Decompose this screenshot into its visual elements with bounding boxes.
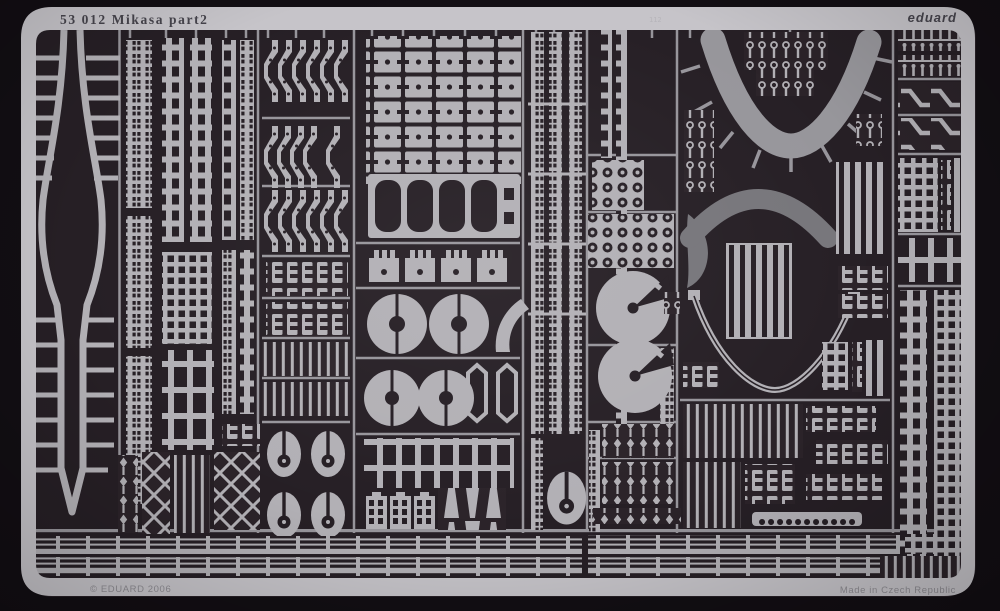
sheet-title: 53 012 Mikasa part2: [60, 12, 209, 27]
clip-row: [222, 424, 260, 446]
oval-vent: [547, 472, 586, 525]
fret-sheet-graphic: 53 012 Mikasa part2 eduard © EDUARD 2006…: [0, 0, 1000, 611]
part-number-label: 112: [649, 16, 662, 24]
window-grid: [364, 438, 514, 488]
ladder-strip: [569, 32, 582, 434]
ladder-strip: [549, 32, 562, 434]
brand-logo: eduard: [908, 10, 957, 25]
slat-block: [864, 340, 888, 396]
slat-block: [836, 162, 888, 254]
vent-fan: [311, 431, 345, 477]
ladder-strip: [222, 250, 236, 414]
ladder-strip: [531, 438, 543, 530]
barrel-cutout: [375, 180, 401, 232]
stanchion-row: [898, 55, 966, 76]
clip-row: [838, 266, 888, 290]
comb-strip: [262, 382, 350, 416]
zigzag-braces: [898, 118, 968, 150]
disc-hole: [385, 391, 399, 405]
eyelet-bits: [856, 114, 882, 146]
deckhouse-part: [414, 492, 435, 529]
clip-column: [852, 342, 862, 392]
hatch-square-grid: [366, 36, 521, 184]
rail-strip: [190, 38, 212, 242]
clip-column: [941, 160, 951, 230]
long-rail-strip: [900, 290, 927, 558]
comb-strip: [262, 342, 350, 376]
comb-panel: [683, 462, 741, 528]
vent-fan: [267, 492, 301, 538]
zigzag-braces: [898, 82, 968, 112]
lattice-panel: [142, 452, 170, 534]
clip-row: [806, 406, 876, 432]
ring-plate: [592, 160, 644, 210]
deckhouse-part: [366, 492, 387, 529]
copyright-text: © EDUARD 2006: [90, 584, 171, 595]
rail-strip: [601, 30, 612, 158]
part-slat-panel: [727, 244, 791, 338]
window-panel: [162, 350, 214, 450]
barrel-cutout: [439, 180, 465, 232]
window-panel: [898, 238, 966, 282]
clip-row: [838, 294, 888, 318]
bead-chain-panel: [602, 424, 674, 458]
clip-block: [745, 464, 795, 504]
vent-fan: [311, 492, 345, 538]
slot: [504, 212, 514, 224]
clip-row: [816, 440, 888, 464]
clip-bits: [683, 362, 719, 388]
wedge-strip: [438, 488, 506, 530]
disc-hole: [451, 316, 467, 332]
ladder-strip: [126, 216, 152, 348]
barrel-cutout: [471, 180, 497, 232]
slat-panel: [727, 244, 791, 338]
eyelet-bits: [664, 292, 680, 314]
grid-block: [905, 534, 965, 554]
slot: [504, 188, 514, 200]
bead-strip: [593, 508, 681, 524]
clip-row: [266, 302, 348, 336]
vent-fan: [267, 431, 301, 477]
clip-row: [266, 262, 348, 296]
bead-chain-panel: [602, 462, 674, 504]
eyelet-block: [744, 32, 828, 70]
eyelet-column: [684, 110, 714, 192]
grid-panel: [898, 158, 938, 232]
eyelet-block: [756, 70, 814, 96]
comb-panel: [683, 404, 803, 458]
barrel-cutout: [407, 180, 433, 232]
ladder-strip: [126, 40, 152, 208]
stanchion-row: [898, 30, 966, 51]
disc-hole: [439, 391, 453, 405]
deckhouse-part: [390, 492, 411, 529]
railing-strip: [588, 557, 900, 576]
long-grid-strip: [934, 290, 961, 558]
railing-strip: [36, 536, 582, 554]
rail-strip: [222, 40, 236, 240]
clip-row: [806, 474, 882, 500]
rail-strip: [240, 250, 254, 414]
lattice-panel: [214, 452, 260, 530]
grid-panel: [162, 252, 212, 344]
comb-block: [880, 556, 965, 578]
railing-strip: [36, 557, 582, 576]
railing-strip: [588, 535, 900, 554]
ladder-strip: [240, 40, 254, 240]
rail-strip: [162, 38, 184, 242]
ladder-strip: [531, 32, 544, 434]
made-in-text: Made in Czech Republic: [840, 585, 956, 596]
barrel-frame: [368, 174, 520, 238]
ring-plate: [588, 214, 674, 268]
dot-bar: [752, 512, 862, 526]
grid-panel: [822, 342, 848, 390]
comb-strip: [174, 455, 210, 533]
photo-etch-sheet-photo: 53 012 Mikasa part2 eduard © EDUARD 2006…: [0, 0, 1000, 611]
bead-chain-panel: [118, 455, 138, 533]
disc-hole: [389, 316, 405, 332]
